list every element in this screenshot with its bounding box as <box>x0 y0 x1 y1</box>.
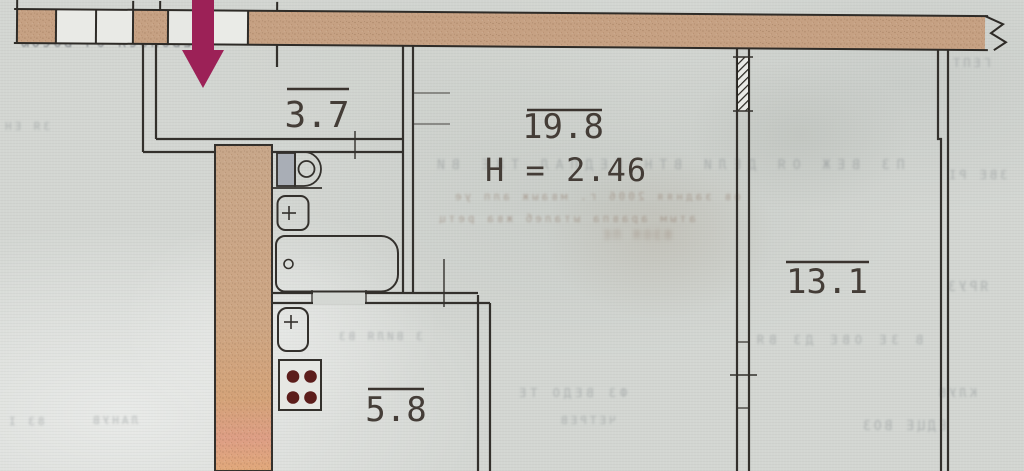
drain-icon <box>284 260 293 269</box>
kitchen-sink-icon <box>278 308 308 351</box>
room2-area-value: 13.1 <box>786 262 868 302</box>
kitchen-area-value: 5.8 <box>365 390 426 430</box>
wall-kitchen-right <box>444 259 490 471</box>
wall-bathroom-right <box>277 43 450 293</box>
kitchen-fixtures <box>278 308 321 410</box>
toilet-icon <box>277 152 321 186</box>
ceiling-height-value: H = 2.46 <box>485 151 647 189</box>
burner-icon <box>287 370 300 383</box>
wall-partition-center <box>730 44 757 471</box>
floor-plan-canvas: 3.7 19.8 H = 2.46 13.1 5.8 <box>0 0 1024 471</box>
bathtub-icon <box>276 236 398 292</box>
room-labels: 3.7 19.8 H = 2.46 13.1 5.8 <box>284 89 869 430</box>
kitchen-area-label: 5.8 <box>365 389 426 430</box>
living-area-value: 19.8 <box>522 107 604 147</box>
burner-icon <box>304 370 317 383</box>
wall-right-outer <box>938 44 948 471</box>
burner-icon <box>287 391 300 404</box>
wall-hallway-left <box>143 43 156 152</box>
ceiling-height-label: H = 2.46 <box>485 151 647 189</box>
hallway-area-value: 3.7 <box>284 95 349 136</box>
living-area-label: 19.8 <box>522 107 604 147</box>
wall-top-outer <box>14 0 1006 50</box>
vent-shaft-hatch <box>738 57 749 111</box>
floor-plan-scan: ЕВОНОСЯ ОЧ ВОСОЮ ІЯ ВЗ ЯМ ЕЖЗЫ ВЧАСЕ ЗЯ … <box>0 0 1024 471</box>
washbasin-icon <box>278 196 309 230</box>
hallway-area-label: 3.7 <box>284 89 349 136</box>
room2-area-label: 13.1 <box>786 262 869 302</box>
stove-icon <box>279 360 321 410</box>
burner-icon <box>304 391 317 404</box>
bathroom-fixtures <box>272 152 398 292</box>
wall-break-symbol <box>985 16 1006 50</box>
wall-column <box>215 145 272 471</box>
wall-kitchen-top <box>272 293 490 303</box>
